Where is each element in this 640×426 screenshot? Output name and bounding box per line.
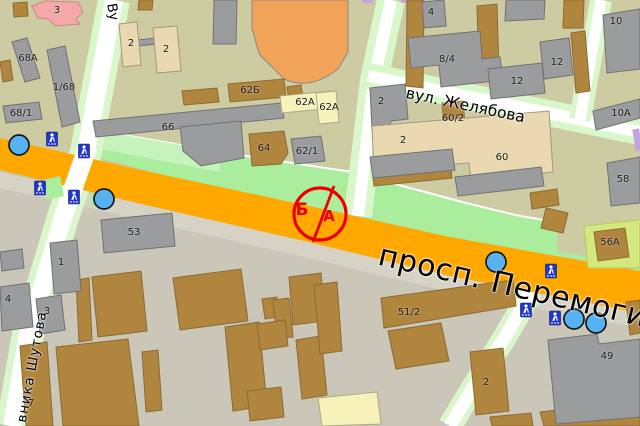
building-label: 2 xyxy=(163,45,169,55)
building-label: 2 xyxy=(128,39,134,49)
building-label: 60 xyxy=(496,153,509,163)
building-label: 4 xyxy=(5,295,11,305)
building-label: 53 xyxy=(128,228,141,238)
building-label: 4 xyxy=(428,8,434,18)
building-label: 1 xyxy=(58,258,64,268)
building-label: 51/2 xyxy=(398,308,420,318)
building-label: 56А xyxy=(600,238,620,248)
building-label: 10А xyxy=(611,109,631,119)
map-canvas[interactable] xyxy=(0,0,640,426)
building-label: 62Б xyxy=(240,86,260,96)
building-label: 62А xyxy=(319,103,339,113)
building-label: 68А xyxy=(18,54,38,64)
building-label: 12 xyxy=(551,58,564,68)
annotation-letter-b: Б xyxy=(296,200,309,220)
building-label: 12 xyxy=(511,77,524,87)
map-viewport[interactable]: Б А просп. Перемоги вул. Желябова вника … xyxy=(0,0,640,426)
building-label: 66 xyxy=(162,123,175,133)
building-label: 3 xyxy=(54,6,60,16)
building-label: 3 xyxy=(44,307,50,317)
building-label: 7 xyxy=(28,399,34,409)
building-label: 62А xyxy=(295,98,315,108)
building-label: 64 xyxy=(258,144,271,154)
annotation-letter-a: А xyxy=(323,207,335,225)
building-label: 2 xyxy=(400,136,406,146)
building-label: 62/1 xyxy=(296,147,318,157)
building-label: 60/2 xyxy=(442,114,464,124)
street-name-vertical: Ву xyxy=(103,2,122,22)
building-label: 10 xyxy=(610,17,623,27)
building-label: 58 xyxy=(617,175,630,185)
building-label: 8/4 xyxy=(439,55,455,65)
building-label: 68/1 xyxy=(10,109,32,119)
building-label: 49 xyxy=(601,352,614,362)
building-label: 2 xyxy=(483,378,489,388)
building-label: 1/68 xyxy=(53,83,75,93)
building-label: 2 xyxy=(378,97,384,107)
